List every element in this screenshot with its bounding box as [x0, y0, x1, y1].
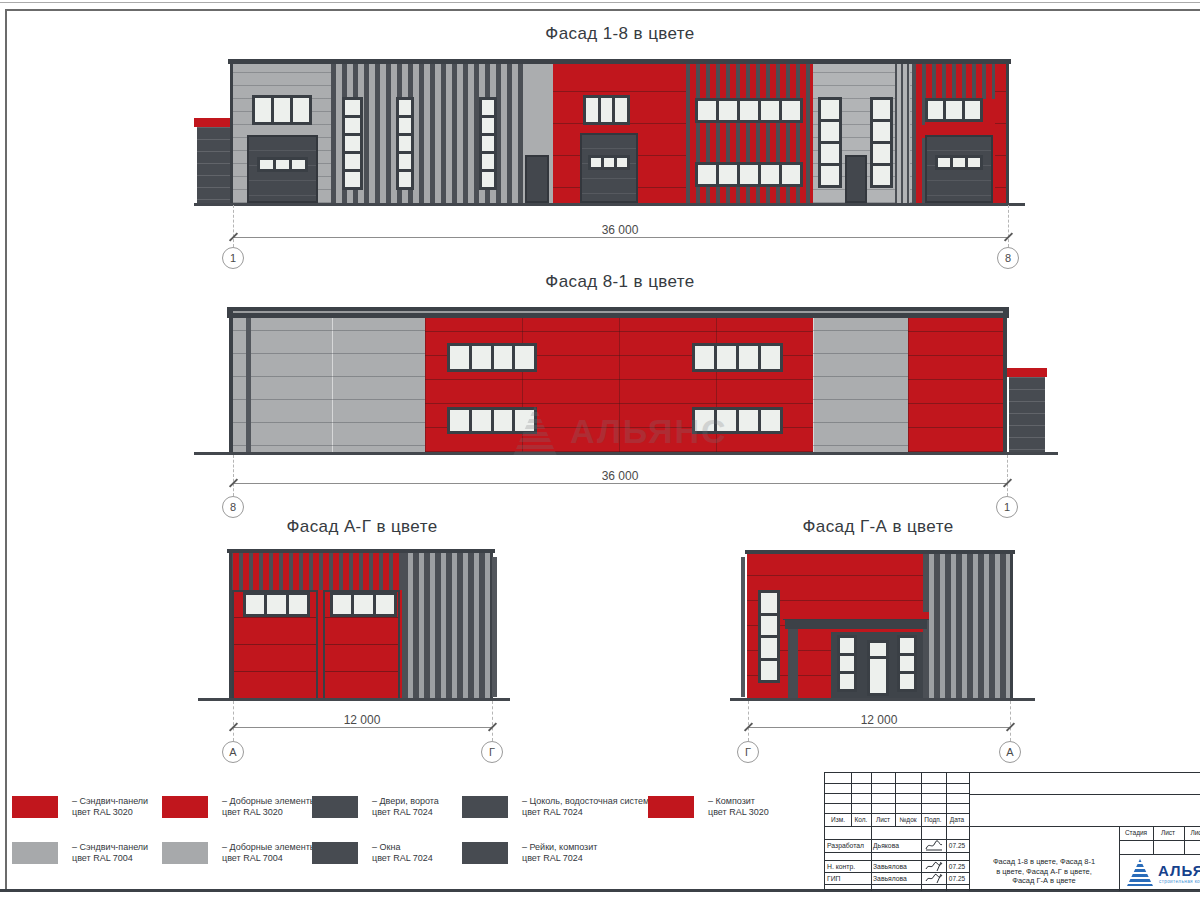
- downpipe: [741, 557, 745, 697]
- axis-marker: А: [999, 741, 1021, 763]
- titleblock-line: [825, 813, 969, 814]
- titleblock: Изм. Кол. Лист №док Подп. Дата Разработа…: [824, 772, 1200, 890]
- window: [818, 97, 842, 188]
- annex-red-cap: [1007, 368, 1047, 377]
- extension-line: [233, 701, 234, 741]
- facade-a-g-drawing: [229, 549, 493, 700]
- legend-item: – Сэндвич-панелицвет RAL 7004: [12, 842, 148, 864]
- legend-item: – Рейки, композитцвет RAL 7024: [462, 842, 597, 864]
- corner-rib-strip: [895, 59, 910, 203]
- vertical-slat-wall: [402, 549, 493, 700]
- corner-trim: [1006, 59, 1009, 203]
- titleblock-date: 07.25: [949, 875, 965, 882]
- stage-col-header: Листов: [1190, 829, 1200, 836]
- sheet-outer-edge: [0, 2, 1200, 3]
- logo-pyramid-icon: [1127, 859, 1153, 886]
- titleblock-col-header: Дата: [950, 816, 964, 823]
- garage-door: [247, 135, 318, 203]
- ground-line: [194, 203, 1025, 206]
- sectional-gate: [323, 590, 400, 700]
- window: [870, 97, 893, 188]
- company-logo: АЛЬЯНС: [1158, 862, 1200, 879]
- garage-door: [925, 135, 993, 203]
- legend-swatch-red: [648, 796, 694, 818]
- annex-left: [197, 127, 230, 203]
- legend-item: – Цоколь, водосточная системацвет RAL 70…: [462, 796, 654, 818]
- titleblock-col-header: Изм.: [831, 816, 845, 823]
- extension-line: [233, 205, 234, 247]
- extension-line: [1010, 701, 1011, 741]
- axis-marker: Г: [737, 741, 759, 763]
- window: [583, 95, 630, 125]
- corner-trim: [1010, 550, 1013, 700]
- facade-g-a-drawing: [747, 550, 1013, 700]
- titleblock-line: [969, 794, 1200, 795]
- window: [342, 97, 363, 190]
- annex-red-cap: [194, 118, 233, 127]
- garage-door-window: [588, 155, 630, 170]
- window: [695, 98, 803, 123]
- gray-panel-wall: [813, 307, 908, 453]
- vertical-slat-wall: [923, 550, 1013, 700]
- garage-door-window: [257, 157, 308, 172]
- titleblock-line: [825, 826, 1200, 827]
- dimension-label: 12 000: [344, 713, 381, 727]
- legend-item: – Доборные элементыцвет RAL 7004: [162, 842, 316, 864]
- legend-swatch-red: [162, 796, 208, 818]
- stage-col-header: Стадия: [1125, 829, 1147, 836]
- titleblock-col-header: Подп.: [924, 816, 941, 823]
- entry-door: [845, 155, 867, 203]
- axis-marker: Г: [481, 741, 503, 763]
- titleblock-role: ГИП: [827, 875, 840, 882]
- titleblock-role: Разработал: [827, 842, 864, 849]
- corner-trim: [230, 59, 233, 203]
- entrance-pillar: [788, 629, 798, 700]
- document-title: Фасад 1-8 в цвете, Фасад 8-1 в цвете, Фа…: [969, 857, 1119, 886]
- corner-trim: [1003, 307, 1007, 453]
- parapet-cap: [745, 550, 1015, 554]
- red-panel-wall: [908, 307, 1007, 453]
- extension-line: [748, 701, 749, 741]
- titleblock-line: [825, 852, 969, 853]
- titleblock-line: [895, 773, 896, 826]
- dimension-line: [233, 483, 1007, 484]
- legend-item: – Композитцвет RAL 3020: [648, 796, 769, 818]
- window: [479, 97, 497, 190]
- entry-door: [525, 155, 549, 203]
- canopy-fascia: [783, 612, 929, 620]
- titleblock-line: [871, 773, 872, 891]
- extension-line: [492, 701, 493, 741]
- legend-item: – Доборные элементыцвет RAL 3020: [162, 796, 316, 818]
- ground-line: [198, 698, 510, 701]
- titleblock-line: [825, 839, 969, 840]
- dimension-label: 12 000: [861, 713, 898, 727]
- watermark-pyramid-icon: [512, 406, 558, 458]
- titleblock-date: 07.25: [949, 842, 965, 849]
- facade-8-1-title: Фасад 8-1 в цвете: [545, 272, 694, 292]
- titleblock-date: 07.25: [949, 863, 965, 870]
- company-logo-subtitle: строительная компания: [1159, 879, 1200, 884]
- axis-marker: А: [222, 741, 244, 763]
- sheet-frame-left: [5, 9, 7, 890]
- entrance-glazing: [831, 632, 923, 698]
- parapet-cap: [228, 59, 1011, 64]
- titleblock-line: [825, 783, 969, 784]
- titleblock-line: [921, 773, 922, 891]
- legend-label: – Сэндвич-панелицвет RAL 7004: [72, 842, 148, 863]
- legend-label: – Сэндвич-панелицвет RAL 3020: [72, 796, 148, 817]
- signature: [924, 873, 944, 884]
- titleblock-line: [825, 793, 969, 794]
- legend-item: – Окнацвет RAL 7024: [312, 842, 433, 864]
- axis-marker: 1: [222, 247, 244, 269]
- drawing-sheet: Фасад 1-8 в цвете: [0, 0, 1200, 900]
- stage-col-header: Лист: [1161, 829, 1175, 836]
- titleblock-name: Завьялова: [873, 875, 907, 882]
- gate-window: [330, 592, 397, 617]
- legend-label: – Доборные элементыцвет RAL 3020: [222, 796, 316, 817]
- window: [758, 590, 780, 683]
- titleblock-line: [851, 773, 852, 826]
- window: [925, 98, 983, 122]
- titleblock-name: Дьякова: [873, 842, 899, 849]
- downpipe: [246, 318, 251, 453]
- window: [447, 343, 537, 372]
- signature: [924, 861, 944, 872]
- legend-swatch-red: [12, 796, 58, 818]
- legend-label: – Доборные элементыцвет RAL 7004: [222, 842, 316, 863]
- legend-label: – Композитцвет RAL 3020: [708, 796, 769, 817]
- legend-label: – Цоколь, водосточная системацвет RAL 70…: [522, 796, 654, 817]
- axis-marker: 8: [222, 496, 244, 518]
- entry-door: [867, 640, 889, 696]
- dimension-line: [233, 237, 1008, 238]
- dimension-line: [748, 727, 1010, 728]
- sheet-frame-top: [5, 9, 1200, 11]
- titleblock-col-header: Лист: [876, 816, 890, 823]
- watermark-text: АЛЬЯНС: [570, 412, 728, 451]
- titleblock-name: Завьялова: [873, 863, 907, 870]
- titleblock-line: [946, 773, 947, 891]
- garage-door-window: [935, 155, 983, 170]
- legend-item: – Сэндвич-панелицвет RAL 3020: [12, 796, 148, 818]
- roof-edge-line: [231, 311, 1005, 313]
- extension-line: [233, 455, 234, 496]
- facade-a-g-title: Фасад А-Г в цвете: [287, 517, 438, 537]
- window: [692, 343, 783, 372]
- titleblock-line: [825, 803, 969, 804]
- legend-swatch-dark: [462, 796, 508, 818]
- dimension-label: 36 000: [602, 469, 639, 483]
- axis-marker: 8: [997, 247, 1019, 269]
- red-slat-band: [229, 549, 402, 590]
- watermark: АЛЬЯНС: [512, 400, 742, 462]
- facade-1-8-drawing: [230, 59, 1009, 203]
- titleblock-line: [825, 860, 969, 861]
- legend-swatch-gray: [162, 842, 208, 864]
- gate-window: [243, 592, 310, 617]
- window: [396, 97, 414, 190]
- legend-label: – Рейки, композитцвет RAL 7024: [522, 842, 597, 863]
- titleblock-line: [1119, 826, 1120, 891]
- titleblock-line: [1119, 840, 1200, 841]
- window: [252, 95, 312, 125]
- legend-swatch-dark: [312, 842, 358, 864]
- legend-item: – Двери, воротацвет RAL 7024: [312, 796, 439, 818]
- titleblock-role: Н. контр.: [827, 863, 855, 870]
- window: [837, 635, 857, 692]
- garage-door: [580, 133, 638, 203]
- canopy: [785, 620, 927, 629]
- facade-g-a-title: Фасад Г-А в цвете: [803, 517, 954, 537]
- legend-label: – Двери, воротацвет RAL 7024: [372, 796, 439, 817]
- facade-1-8-title: Фасад 1-8 в цвете: [545, 24, 694, 44]
- legend-swatch-gray: [12, 842, 58, 864]
- titleblock-line: [825, 872, 969, 873]
- axis-marker: 1: [996, 496, 1018, 518]
- parapet-cap: [227, 549, 495, 553]
- extension-line: [1008, 205, 1009, 247]
- titleblock-col-header: Кол.: [855, 816, 868, 823]
- titleblock-line: [1119, 854, 1200, 855]
- ground-line: [730, 698, 1035, 701]
- window: [897, 635, 917, 692]
- sectional-gate: [232, 590, 318, 700]
- gray-panel-wall: [229, 307, 425, 453]
- annex-right: [1009, 377, 1045, 452]
- titleblock-col-header: №док: [899, 816, 916, 823]
- titleblock-line: [825, 884, 969, 885]
- legend-swatch-dark: [312, 796, 358, 818]
- extension-line: [1007, 455, 1008, 496]
- window: [695, 162, 803, 187]
- legend-swatch-dark: [462, 842, 508, 864]
- dimension-line: [233, 727, 492, 728]
- dimension-label: 36 000: [602, 223, 639, 237]
- downpipe: [492, 557, 497, 697]
- corner-trim: [229, 307, 233, 453]
- legend-label: – Окнацвет RAL 7024: [372, 842, 433, 863]
- signature: [924, 840, 944, 851]
